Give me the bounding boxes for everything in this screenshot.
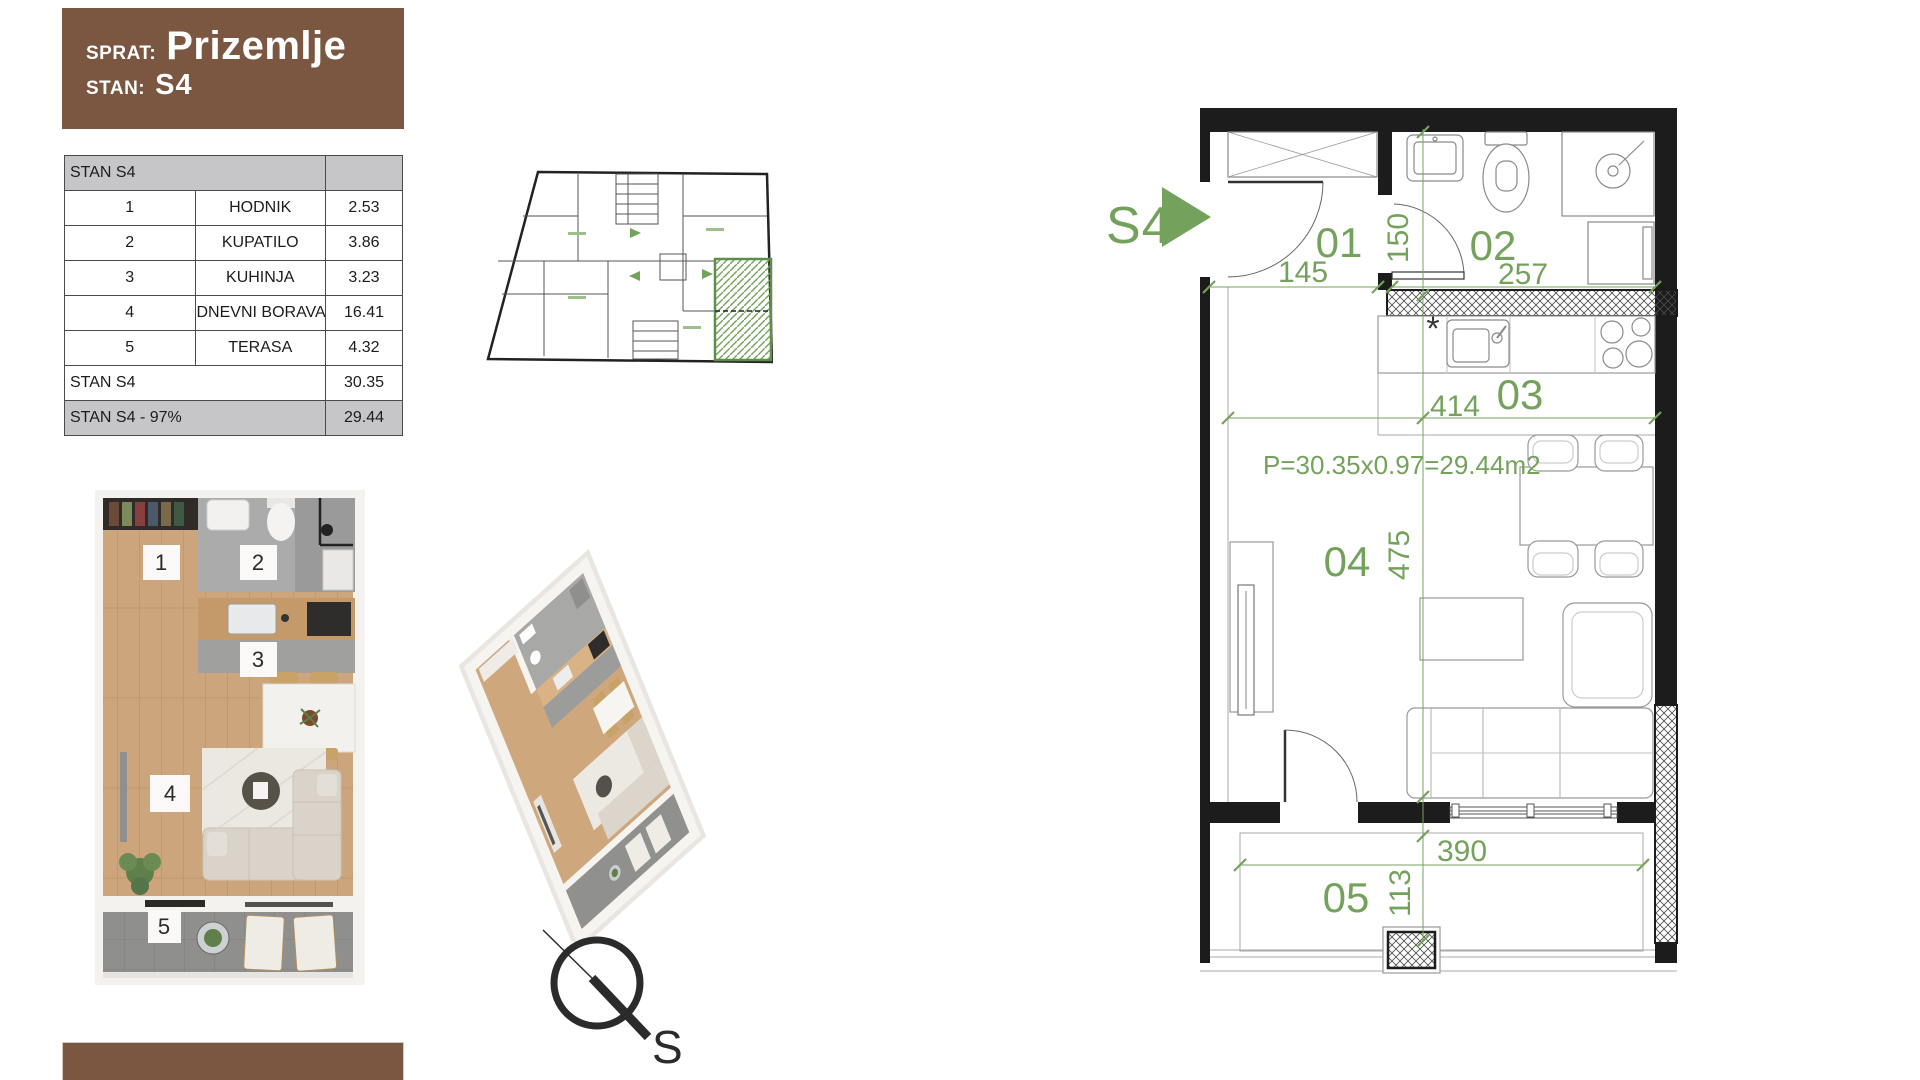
row-num: 1 <box>65 191 196 226</box>
row-num: 3 <box>65 261 196 296</box>
table-title: STAN S4 <box>65 156 326 191</box>
note-asterisk: * <box>1426 310 1439 348</box>
dim-150: 150 <box>1382 213 1415 263</box>
area-table: STAN S4 1 HODNIK 2.53 2 KUPATILO 3.86 3 … <box>64 155 403 436</box>
sofa-plan <box>1407 708 1653 798</box>
room-05: 05 <box>1323 874 1370 921</box>
shower <box>1562 132 1654 216</box>
south-label: S <box>652 1021 683 1073</box>
terrace-pillar <box>1383 927 1440 973</box>
toilet <box>1483 132 1529 212</box>
table-row: 3 KUHINJA 3.23 <box>65 261 403 296</box>
row-value: 3.86 <box>326 226 403 261</box>
row-name: HODNIK <box>195 191 326 226</box>
total-label: STAN S4 <box>65 366 326 401</box>
bath-sink <box>1407 135 1463 181</box>
highlighted-unit-s4 <box>715 259 771 360</box>
total-value: 30.35 <box>326 366 403 401</box>
washing-machine <box>1588 222 1654 284</box>
footer-brand-bar <box>62 1042 404 1080</box>
hatched-column-right <box>1655 705 1677 943</box>
table-total-row: STAN S4 30.35 <box>65 366 403 401</box>
tv-cabinet <box>1230 542 1273 715</box>
dining-render <box>263 672 355 760</box>
row-name: KUHINJA <box>195 261 326 296</box>
row-name: TERASA <box>195 331 326 366</box>
row-value: 16.41 <box>326 296 403 331</box>
dim-145: 145 <box>1278 256 1328 289</box>
wardrobe-render <box>103 498 198 530</box>
apartment-2d-render: 1 2 3 4 5 <box>95 490 365 985</box>
tag-4: 4 <box>164 781 176 806</box>
table-row: 2 KUPATILO 3.86 <box>65 226 403 261</box>
dim-414: 414 <box>1430 390 1480 423</box>
compass-icon: S <box>540 925 710 1075</box>
row-value: 4.32 <box>326 331 403 366</box>
dim-475: 475 <box>1383 530 1416 580</box>
table-row: 4 DNEVNI BORAVAK 16.41 <box>65 296 403 331</box>
room-03: 03 <box>1497 371 1544 418</box>
room-04: 04 <box>1324 538 1371 585</box>
reduced-value: 29.44 <box>326 401 403 436</box>
dim-390: 390 <box>1437 835 1487 868</box>
row-num: 5 <box>65 331 196 366</box>
armchair-plan <box>1563 603 1652 707</box>
table-header-row: STAN S4 <box>65 156 403 191</box>
row-num: 2 <box>65 226 196 261</box>
floor-value: Prizemlje <box>166 24 346 69</box>
table-title-value-cell <box>326 156 403 191</box>
apartment-3d-render <box>450 542 840 942</box>
title-block: SPRAT: Prizemlje STAN: S4 <box>62 8 404 129</box>
tag-5: 5 <box>158 914 170 939</box>
floor-label: SPRAT: <box>86 43 156 65</box>
technical-floor-plan: 01 145 150 02 257 03 414 P=30.35x0.97=29… <box>1200 105 1680 975</box>
terrace-render <box>103 896 353 978</box>
unit-label: STAN: <box>86 78 145 100</box>
dim-257: 257 <box>1498 258 1548 291</box>
iso-unit <box>459 549 707 942</box>
table-row: 5 TERASA 4.32 <box>65 331 403 366</box>
sliding-glass-door <box>1450 804 1617 818</box>
floorplan-sheet: SPRAT: Prizemlje STAN: S4 STAN S4 1 HODN… <box>0 0 1920 1080</box>
tag-2: 2 <box>252 550 264 575</box>
dim-113: 113 <box>1384 869 1417 917</box>
tag-1: 1 <box>155 550 167 575</box>
table-row: 1 HODNIK 2.53 <box>65 191 403 226</box>
area-formula: P=30.35x0.97=29.44m2 <box>1263 450 1541 480</box>
row-num: 4 <box>65 296 196 331</box>
terrace-door <box>1285 730 1357 802</box>
wardrobe-plan <box>1228 132 1377 177</box>
building-overview-plan <box>478 166 773 368</box>
coffee-table-plan <box>1420 598 1523 660</box>
reduced-label: STAN S4 - 97% <box>65 401 326 436</box>
table-reduced-row: STAN S4 - 97% 29.44 <box>65 401 403 436</box>
row-name: DNEVNI BORAVAK <box>195 296 326 331</box>
row-value: 3.23 <box>326 261 403 296</box>
unit-value: S4 <box>155 69 192 102</box>
tag-3: 3 <box>252 647 264 672</box>
row-name: KUPATILO <box>195 226 326 261</box>
row-value: 2.53 <box>326 191 403 226</box>
